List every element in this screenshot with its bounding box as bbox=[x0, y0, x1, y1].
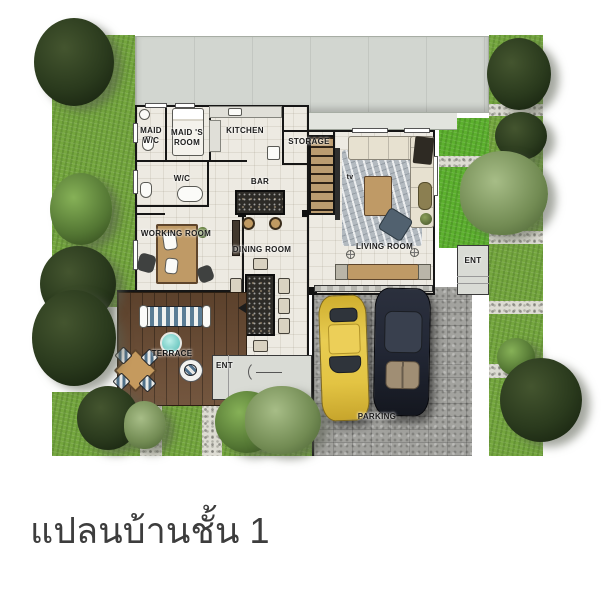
label-kitchen: KITCHEN bbox=[220, 126, 270, 136]
terrace-round-chair-cushion bbox=[184, 364, 197, 376]
fridge bbox=[267, 146, 280, 160]
yellow-car bbox=[318, 294, 370, 422]
terrace-sofa bbox=[145, 306, 203, 327]
sofa-cushion bbox=[413, 136, 435, 165]
dining-chair bbox=[253, 258, 268, 270]
label-working-room: WORKING ROOM bbox=[135, 229, 217, 239]
lounge-chair bbox=[418, 182, 432, 210]
label-parking: PARKING bbox=[344, 412, 410, 422]
dining-table bbox=[245, 274, 275, 336]
label-storage: STORAGE bbox=[283, 137, 335, 147]
bench bbox=[347, 264, 419, 280]
tree bbox=[487, 38, 551, 110]
floor-plan: MAID W/C MAID 'S ROOM KITCHEN STORAGE W/… bbox=[32, 8, 568, 456]
sofa-armrest bbox=[139, 305, 148, 328]
window bbox=[404, 128, 430, 133]
label-ent-main: ENT bbox=[216, 361, 246, 371]
porch-step-line bbox=[457, 283, 489, 284]
dining-chair bbox=[278, 278, 290, 294]
plan-title: แปลนบ้านชั้น 1 bbox=[30, 502, 269, 559]
toilet bbox=[140, 182, 152, 198]
bar-stool bbox=[242, 217, 255, 230]
planter bbox=[418, 264, 431, 280]
bar-stool bbox=[269, 217, 282, 230]
gravel-band bbox=[489, 301, 543, 314]
wall bbox=[135, 205, 209, 207]
label-ent-side: ENT bbox=[457, 256, 489, 266]
column bbox=[302, 210, 309, 217]
dark-car bbox=[373, 288, 431, 417]
label-terrace: TERRACE bbox=[150, 349, 194, 359]
kitchen-sink bbox=[228, 108, 242, 116]
wall bbox=[282, 105, 284, 165]
kitchen-counter bbox=[209, 106, 282, 118]
tree bbox=[32, 290, 116, 386]
kitchen-counter bbox=[209, 120, 221, 152]
dining-chair bbox=[253, 340, 268, 352]
tree bbox=[460, 151, 548, 235]
tree bbox=[124, 401, 166, 449]
label-maid-wc: MAID W/C bbox=[136, 126, 166, 145]
label-dining-room: DINING ROOM bbox=[230, 245, 294, 255]
planter bbox=[335, 264, 348, 280]
door-arrow bbox=[256, 372, 282, 373]
desk-papers bbox=[164, 257, 179, 274]
tv-wall bbox=[335, 148, 340, 220]
label-maids-room: MAID 'S ROOM bbox=[166, 128, 208, 147]
dining-chair bbox=[278, 298, 290, 314]
dining-chair bbox=[278, 318, 290, 334]
label-tv: tv bbox=[343, 174, 357, 182]
bar-counter bbox=[235, 190, 285, 215]
sofa-armrest bbox=[202, 305, 211, 328]
window bbox=[145, 103, 167, 108]
window bbox=[352, 128, 388, 133]
side-entrance-porch bbox=[457, 245, 489, 295]
wall bbox=[135, 160, 247, 162]
tree bbox=[245, 386, 321, 454]
wall bbox=[282, 130, 335, 132]
window bbox=[133, 170, 138, 194]
tree bbox=[50, 173, 112, 245]
sink bbox=[139, 109, 150, 120]
staircase bbox=[309, 135, 335, 215]
wall bbox=[135, 213, 165, 215]
tree bbox=[34, 18, 114, 106]
bathtub bbox=[177, 186, 203, 202]
label-wc: W/C bbox=[168, 174, 196, 184]
label-bar: BAR bbox=[235, 177, 285, 187]
floor-plan-page: MAID W/C MAID 'S ROOM KITCHEN STORAGE W/… bbox=[0, 0, 606, 600]
roof-slab bbox=[135, 36, 489, 113]
door-swing-marker bbox=[238, 303, 246, 313]
tree bbox=[500, 358, 582, 442]
wall bbox=[207, 160, 209, 207]
label-living-room: LIVING ROOM bbox=[337, 242, 432, 252]
porch-step-line bbox=[457, 276, 489, 277]
plant bbox=[420, 213, 432, 225]
